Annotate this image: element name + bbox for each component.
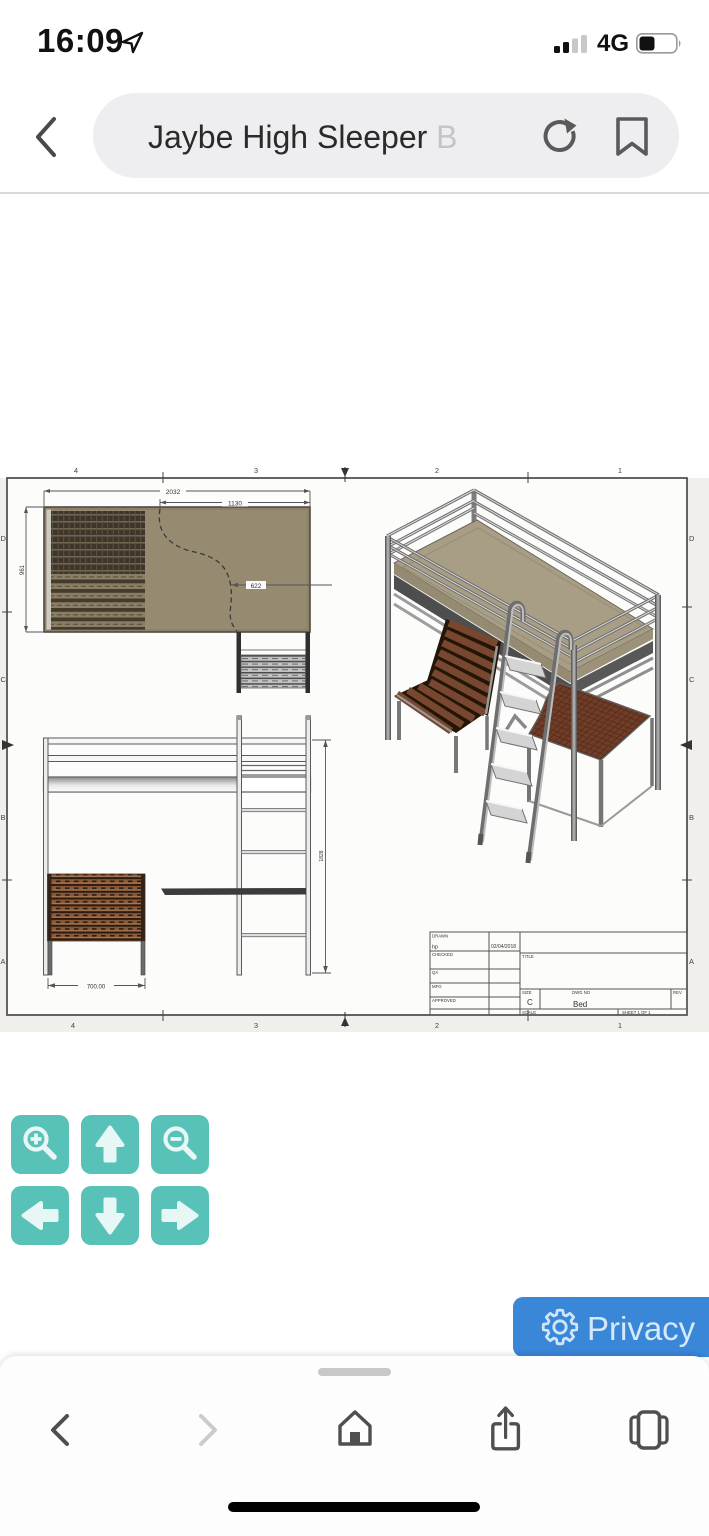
svg-text:A: A [1,957,6,966]
svg-text:4: 4 [74,466,78,475]
svg-text:SHEET 1 OF 1: SHEET 1 OF 1 [622,1010,651,1015]
svg-text:C: C [1,675,7,684]
svg-text:2032: 2032 [166,489,181,496]
svg-text:B: B [1,813,6,822]
svg-text:2: 2 [435,466,439,475]
svg-text:DRAWN: DRAWN [432,934,448,939]
svg-text:APPROVED: APPROVED [432,998,456,1003]
svg-text:QA: QA [432,970,438,975]
svg-text:A: A [689,957,694,966]
svg-text:1828: 1828 [319,850,325,861]
svg-text:Bed: Bed [573,1000,587,1009]
svg-text:3: 3 [254,466,258,475]
svg-text:4: 4 [71,1021,75,1030]
svg-text:1130: 1130 [228,501,242,508]
svg-text:622: 622 [251,583,262,590]
svg-text:D: D [689,534,695,543]
svg-text:1: 1 [618,466,622,475]
svg-text:hp: hp [432,945,438,951]
svg-text:MFG: MFG [432,984,442,989]
svg-text:CHECKED: CHECKED [432,952,453,957]
svg-text:B: B [689,813,694,822]
svg-text:DWG NO: DWG NO [572,990,591,995]
svg-text:3: 3 [254,1021,258,1030]
svg-text:SIZE: SIZE [522,990,532,995]
svg-text:1: 1 [618,1021,622,1030]
svg-text:D: D [1,534,7,543]
svg-text:REV: REV [673,990,682,995]
svg-text:02/04/2018: 02/04/2018 [491,944,516,950]
svg-text:TITLE: TITLE [522,954,534,959]
svg-text:2: 2 [435,1021,439,1030]
svg-text:700.00: 700.00 [87,985,106,991]
svg-text:C: C [527,998,533,1007]
svg-text:C: C [689,675,695,684]
svg-text:SCALE: SCALE [522,1010,536,1015]
svg-text:961: 961 [20,564,26,575]
